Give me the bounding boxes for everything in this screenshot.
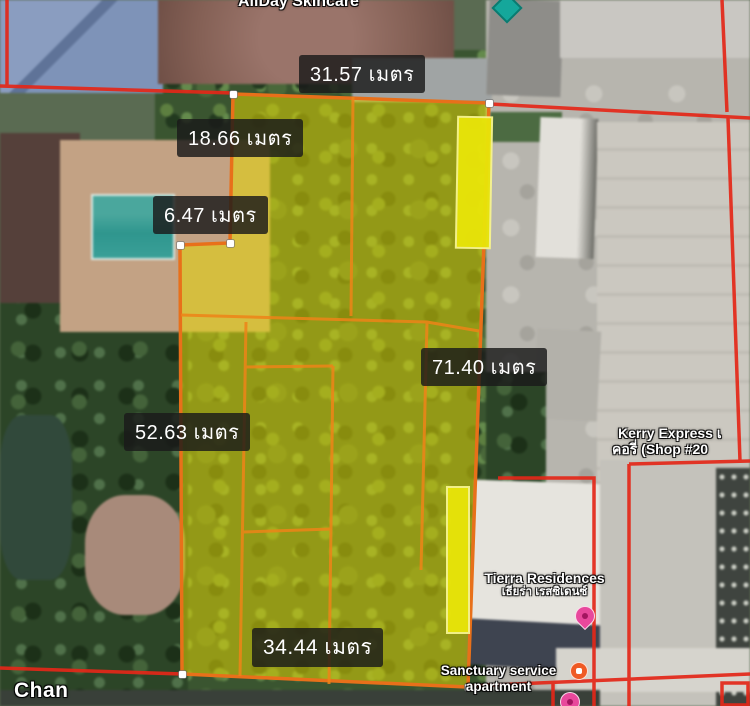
satellite-map[interactable]: 31.57 เมตร 18.66 เมตร 6.47 เมตร 71.40 เม… (0, 0, 750, 706)
parcel-overlay (0, 0, 750, 706)
place-label-allday-skincare[interactable]: AllDay Skincare (238, 0, 359, 11)
kerry-label-line2: คอรี่ (Shop #20 (612, 441, 722, 457)
parcel-line (728, 118, 740, 461)
vertex-handle[interactable] (486, 100, 494, 108)
highlight-strip-upper (456, 117, 492, 249)
sanctuary-label-line1: Sanctuary service (426, 663, 571, 679)
vertex-handle[interactable] (179, 671, 187, 679)
tierra-label-subtitle: เธียร่า เรสซิเดนซ์ (472, 586, 617, 599)
measurement-label-left-upper: 18.66 เมตร (177, 119, 303, 157)
place-label-kerry-express[interactable]: Kerry Express เ คอรี่ (Shop #20 (618, 425, 722, 457)
parcel-line (629, 461, 750, 464)
place-label-sanctuary-apartment[interactable]: Sanctuary service apartment (426, 663, 571, 694)
sanctuary-label-line2: apartment (426, 679, 571, 695)
lodging-marker-icon[interactable] (570, 662, 588, 680)
parcel-line (0, 668, 182, 674)
parcel-line (0, 86, 233, 93)
tierra-label-name: Tierra Residences (472, 570, 617, 586)
subdivision-line (246, 366, 333, 367)
vertex-handle[interactable] (227, 240, 235, 248)
kerry-label-line1: Kerry Express เ (618, 425, 722, 441)
parcel-line (722, 0, 727, 112)
parcel-line (490, 104, 750, 118)
place-label-tierra-residences[interactable]: Tierra Residences เธียร่า เรสซิเดนซ์ (472, 570, 617, 599)
vertex-handle[interactable] (177, 242, 185, 250)
vertex-handle[interactable] (230, 91, 238, 99)
highlight-strip-lower (447, 487, 469, 633)
land-plot-polygon[interactable] (180, 94, 489, 687)
measurement-label-top-width: 31.57 เมตร (299, 55, 425, 93)
subdivision-line (351, 97, 353, 316)
parcel-rect (722, 683, 748, 705)
measurement-label-notch: 6.47 เมตร (153, 196, 268, 234)
measurement-label-left-length: 52.63 เมตร (124, 413, 250, 451)
measurement-label-right-length: 71.40 เมตร (421, 348, 547, 386)
measurement-label-bottom-width: 34.44 เมตร (252, 628, 383, 667)
street-label-chan: Chan (14, 679, 69, 703)
